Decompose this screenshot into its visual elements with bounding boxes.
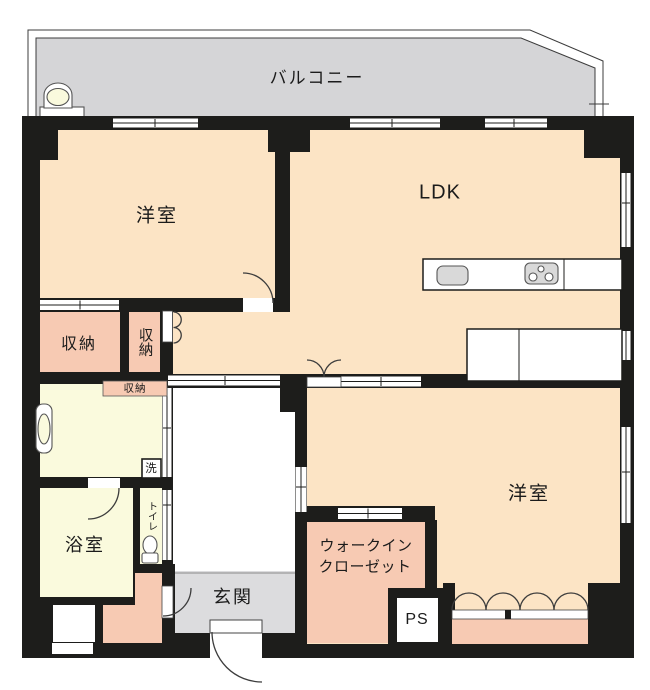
washbasin-icon [36, 404, 52, 453]
sliding-window-ldk-bedroom2 [341, 377, 421, 387]
toilet-icon [142, 536, 158, 563]
sliding-door-washroom [163, 388, 172, 477]
kitchen-counter [423, 259, 622, 290]
window-top-bedroom1 [113, 119, 198, 128]
storage1-label: 収納 [61, 330, 97, 354]
bedroom1-label: 洋室 [136, 201, 178, 228]
sliding-door-wic [338, 508, 402, 519]
storage2-label: 収納 [135, 328, 156, 357]
floor-plan: バルコニー 洋室 LDK 収納 収納 収納 洗 浴室 トイレ 玄関 ウォークイン… [0, 0, 650, 690]
entrance-label: 玄関 [213, 583, 253, 609]
entrance-opening [210, 633, 262, 658]
sliding-door-storage1 [40, 300, 119, 310]
laundry-label: 洗 [145, 460, 157, 476]
stove-icon [525, 263, 558, 284]
window-top-ldk-2 [485, 119, 547, 128]
washroom-storage-label: 収納 [124, 381, 147, 396]
wic-label-line1: ウォークイン [319, 535, 412, 556]
meter-box-alcove [53, 605, 95, 642]
window-right-ldk-2 [622, 331, 631, 360]
wic-label-line2: クローゼット [318, 556, 411, 577]
kitchen-sink-icon [437, 266, 468, 285]
window-top-ldk-1 [350, 119, 440, 128]
floor-plan-drawing [0, 0, 650, 690]
bathroom-label: 浴室 [65, 531, 105, 557]
window-right-ldk-1 [622, 173, 631, 247]
closet-floor [452, 619, 588, 644]
window-right-bedroom2 [622, 427, 631, 523]
ldk-label: LDK [419, 182, 461, 205]
sliding-door-toilet [163, 490, 172, 560]
sliding-door-hall-ldk [168, 376, 280, 386]
balcony-label: バルコニー [270, 64, 365, 89]
pipe-space-label: PS [405, 611, 428, 629]
sliding-door-bedroom2 [296, 467, 307, 512]
toilet-label: トイレ [144, 501, 159, 531]
kitchen-cabinet [467, 329, 622, 381]
bedroom2-label: 洋室 [508, 479, 550, 506]
meter-box-door [52, 643, 93, 654]
